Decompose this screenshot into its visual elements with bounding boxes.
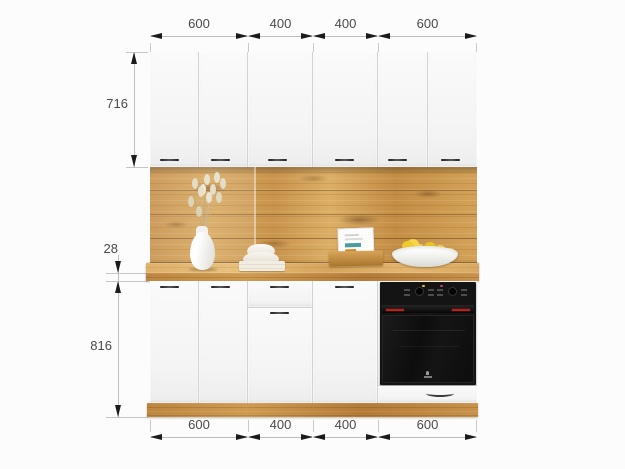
- oven-knob: [415, 287, 424, 296]
- card-text-line: [345, 234, 359, 236]
- indicator-light-magenta: [440, 285, 443, 287]
- extension-tick: [150, 43, 151, 52]
- logo-mark: [426, 371, 429, 375]
- oven-knob: [448, 287, 457, 296]
- oven-red-accent: [452, 309, 470, 311]
- dimension-segment: 400: [248, 432, 313, 444]
- flower-vase-body: [190, 232, 215, 270]
- extension-line: [106, 417, 148, 418]
- door-handle: [441, 159, 460, 161]
- control-marking: [461, 289, 467, 291]
- dimension-label: 28: [88, 241, 118, 256]
- oven-base-drawer-front: [378, 386, 477, 403]
- dim-arrow-right-icon: [301, 434, 313, 440]
- control-marking: [428, 289, 434, 291]
- dimension-segment: 600: [150, 31, 248, 43]
- dim-arrow-right-icon: [366, 434, 378, 440]
- dim-arrow-right-icon: [366, 33, 378, 39]
- door-handle: [388, 159, 407, 161]
- dimension-line: [151, 437, 247, 438]
- upper-cabinets: [150, 52, 477, 167]
- dimension-segment: 600: [378, 432, 477, 444]
- base-cabinets: [150, 281, 477, 403]
- door-handle: [211, 159, 230, 161]
- door-handle: [335, 286, 354, 288]
- extension-line: [106, 281, 148, 282]
- dimension-line: [151, 36, 247, 37]
- countertop-front-edge: [146, 273, 479, 281]
- dimension-segment: 400: [313, 31, 378, 43]
- dim-arrow-right-icon: [465, 33, 477, 39]
- dim-arrow-left-icon: [150, 434, 162, 440]
- dim-arrow-right-icon: [236, 33, 248, 39]
- drawer-handle: [426, 390, 454, 397]
- dim-arrow-right-icon: [301, 33, 313, 39]
- dim-arrow-left-icon: [378, 434, 390, 440]
- extension-tick: [313, 43, 314, 52]
- dim-arrow-left-icon: [248, 33, 260, 39]
- indicator-light-yellow: [422, 285, 425, 287]
- dim-arrow-left-icon: [378, 33, 390, 39]
- extension-line: [106, 273, 148, 274]
- dimension-line: [379, 437, 476, 438]
- dim-arrow-left-icon: [313, 434, 325, 440]
- upper-cabinet-door: [378, 52, 427, 167]
- dim-arrow-right-icon: [236, 434, 248, 440]
- control-marking: [437, 294, 443, 296]
- dim-arrow-left-icon: [248, 434, 260, 440]
- upper-cabinet-door: [248, 52, 312, 167]
- dim-arrow-left-icon: [150, 33, 162, 39]
- drawer-handle: [270, 286, 289, 288]
- dimension-segment: 600: [150, 432, 248, 444]
- dim-arrow-down-icon: [131, 155, 137, 167]
- upper-cabinet-door: [313, 52, 377, 167]
- recipe-stand: [329, 251, 383, 267]
- control-marking: [404, 289, 410, 291]
- card-text-line: [345, 243, 361, 248]
- dim-arrow-up-icon: [115, 281, 121, 293]
- door-handle: [335, 159, 354, 161]
- plinth: [147, 403, 478, 417]
- dimension-label: 600: [378, 417, 477, 432]
- glass-reflection-line: [393, 330, 465, 331]
- upper-cabinet-door: [428, 52, 477, 167]
- logo-base: [424, 376, 432, 378]
- glass-reflection-line: [399, 346, 459, 347]
- dimension-label: 600: [150, 417, 248, 432]
- base-cabinet-door: [150, 281, 198, 403]
- dimension-segment: 400: [313, 432, 378, 444]
- door-handle: [268, 159, 287, 161]
- dimension-line: [379, 36, 476, 37]
- dim-arrow-right-icon: [465, 434, 477, 440]
- dimension-label: 816: [82, 338, 112, 353]
- dimension-line: [118, 255, 119, 417]
- dimension-segment: 600: [378, 31, 477, 43]
- door-handle: [160, 286, 179, 288]
- dim-arrow-left-icon: [313, 33, 325, 39]
- dimension-label: 400: [313, 16, 378, 31]
- dimension-label: 400: [313, 417, 378, 432]
- control-marking: [437, 289, 443, 291]
- extension-tick: [378, 43, 379, 52]
- dimension-label: 400: [248, 417, 313, 432]
- upper-cabinet-door: [199, 52, 247, 167]
- door-handle: [270, 312, 289, 314]
- extension-tick: [476, 43, 477, 52]
- dimension-segment: 400: [248, 31, 313, 43]
- dimension-label: 600: [378, 16, 477, 31]
- napkin: [239, 261, 285, 271]
- dimension-line: [134, 52, 135, 167]
- base-cabinet-door: [199, 281, 247, 403]
- extension-line: [126, 167, 148, 168]
- dim-arrow-down-icon: [115, 405, 121, 417]
- kitchen-dimension-diagram: 600 400 400 600 716: [0, 0, 625, 469]
- oven-brand-logo: [424, 371, 432, 379]
- upper-cabinet-door: [150, 52, 198, 167]
- base-drawer-front: [248, 281, 312, 307]
- card-text-line: [345, 238, 363, 241]
- dim-arrow-down-icon: [115, 261, 121, 273]
- dimension-label: 400: [248, 16, 313, 31]
- base-cabinet-door: [313, 281, 377, 403]
- extension-line: [126, 52, 148, 53]
- dimension-label: 716: [98, 96, 128, 111]
- extension-tick: [248, 43, 249, 52]
- base-cabinet-door: [248, 308, 312, 403]
- dimension-label: 600: [150, 16, 248, 31]
- door-handle: [211, 286, 230, 288]
- control-marking: [404, 294, 410, 296]
- control-marking: [428, 294, 434, 296]
- control-marking: [461, 294, 467, 296]
- door-handle: [160, 159, 179, 161]
- oven-red-accent: [386, 309, 404, 311]
- flower-heads: [198, 186, 204, 197]
- dim-arrow-up-icon: [131, 52, 137, 64]
- built-in-oven: [380, 282, 476, 385]
